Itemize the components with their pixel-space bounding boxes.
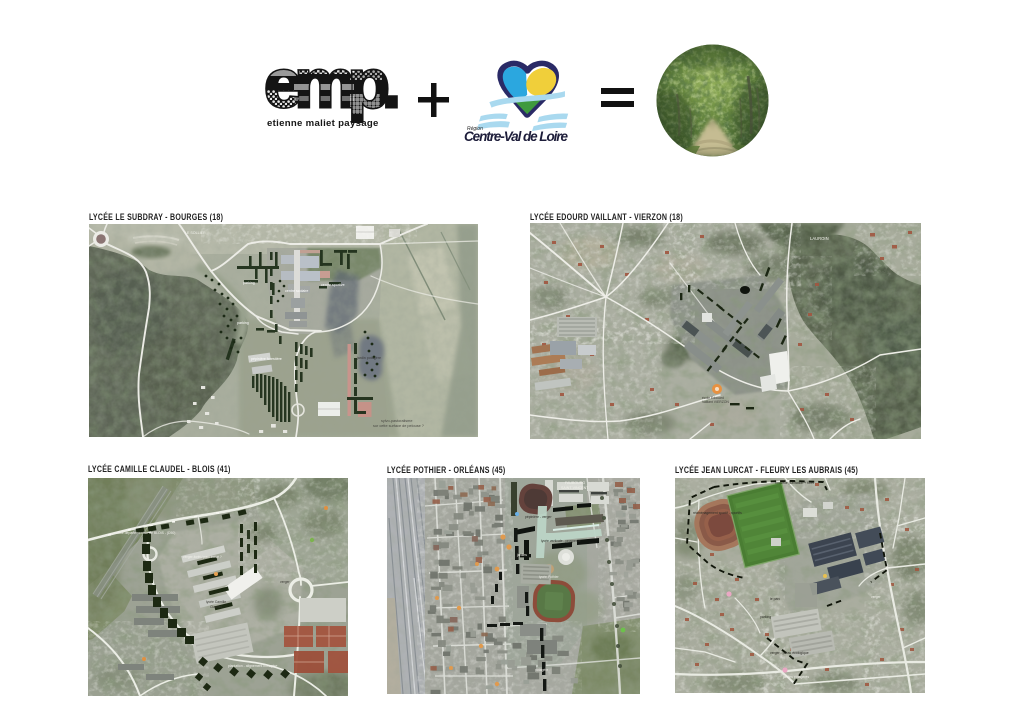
svg-text:lycée Camille: lycée Camille xyxy=(206,600,226,604)
svg-text:potagère: potagère xyxy=(535,668,548,672)
svg-text:SAINT-VINCENT: SAINT-VINCENT xyxy=(561,486,589,490)
svg-text:le parc: le parc xyxy=(770,597,780,601)
svg-text:centre sportive: centre sportive xyxy=(321,283,345,287)
svg-text:parking: parking xyxy=(243,281,255,285)
svg-text:LE SOLLIER: LE SOLLIER xyxy=(185,231,206,235)
svg-text:nouvelle plantation + forêt: nouvelle plantation + forêt xyxy=(775,481,814,485)
svg-text:verger-forêt / parc boisé ?: verger-forêt / parc boisé ? xyxy=(183,555,222,559)
svg-text:jardin potagère: jardin potagère xyxy=(356,356,381,360)
svg-text:route départementale de BLOIS: route départementale de BLOIS - (D50) xyxy=(116,531,175,535)
svg-text:verger: verger xyxy=(871,595,881,599)
svg-text:verger: verger xyxy=(280,580,290,584)
svg-text:FAUBOURG: FAUBOURG xyxy=(565,481,585,485)
svg-text:parking: parking xyxy=(237,321,249,325)
svg-text:parking: parking xyxy=(760,615,771,619)
svg-text:verger - préau écologique: verger - préau écologique xyxy=(770,651,809,655)
svg-text:etienne maliet paysage: etienne maliet paysage xyxy=(267,118,379,129)
svg-text:pépinière - verger: pépinière - verger xyxy=(525,515,552,519)
svg-text:Claudel: Claudel xyxy=(210,605,222,609)
svg-text:Vaillant VIERZON: Vaillant VIERZON xyxy=(702,400,729,404)
svg-text:lycée Pothier: lycée Pothier xyxy=(539,575,559,579)
svg-text:Centre-Val de Loire: Centre-Val de Loire xyxy=(464,129,568,144)
svg-text:centre scolaire: centre scolaire xyxy=(285,289,308,293)
svg-text:LAUROIN: LAUROIN xyxy=(810,236,829,241)
svg-text:lycée verticale - prosperité: lycée verticale - prosperité xyxy=(541,539,581,543)
svg-text:jardins potagères: jardins potagères xyxy=(782,675,809,679)
svg-text:pépinière forestière: pépinière forestière xyxy=(251,357,282,361)
svg-text:réaménagement sportif - sporti: réaménagement sportif - sportifs xyxy=(693,511,742,515)
svg-text:sylvo-pastoralisme: sylvo-pastoralisme xyxy=(381,419,412,423)
svg-text:plantation - alignement bocagè: plantation - alignement bocagère xyxy=(228,664,278,668)
svg-text:sur cette surface de pelouse ?: sur cette surface de pelouse ? xyxy=(373,424,424,428)
svg-text:jardins: jardins xyxy=(516,553,527,557)
